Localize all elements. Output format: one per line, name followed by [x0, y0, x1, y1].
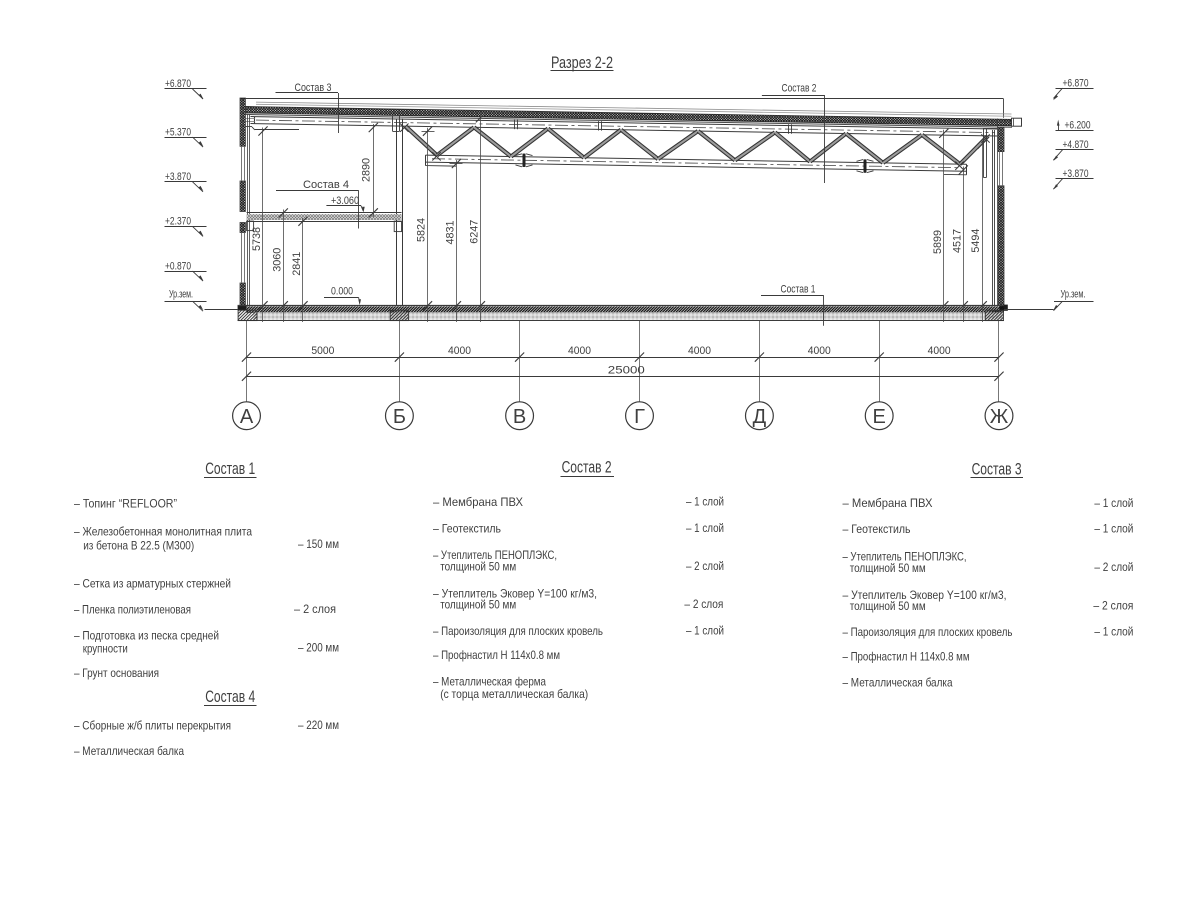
svg-text:– Мембрана ПВХ: – Мембрана ПВХ: [433, 495, 523, 509]
svg-text:2890: 2890: [360, 158, 372, 182]
svg-text:– Пароизоляция для плоских кр: – Пароизоляция для плоских кровель: [433, 624, 603, 638]
svg-text:4000: 4000: [688, 345, 711, 357]
svg-text:толщиной 50 мм: толщиной 50 мм: [440, 560, 516, 574]
svg-text:2841: 2841: [291, 252, 303, 276]
svg-text:– 1 слой: – 1 слой: [686, 521, 724, 535]
svg-text:В: В: [513, 406, 526, 428]
svg-text:+0.870: +0.870: [165, 260, 191, 272]
svg-text:– 1 слой: – 1 слой: [1094, 625, 1133, 639]
svg-text:Состав 1: Состав 1: [781, 283, 816, 295]
svg-text:4000: 4000: [568, 345, 591, 357]
svg-text:толщиной 50 мм: толщиной 50 мм: [440, 597, 516, 611]
svg-text:Состав 2: Состав 2: [782, 83, 817, 95]
svg-text:– Профнастил Н 114х0.8 мм: – Профнастил Н 114х0.8 мм: [433, 648, 560, 662]
svg-text:– Геотекстиль: – Геотекстиль: [843, 522, 911, 536]
svg-text:+2.370: +2.370: [165, 216, 191, 228]
svg-text:толщиной 50 мм: толщиной 50 мм: [850, 561, 926, 575]
svg-text:Ур.зем.: Ур.зем.: [1061, 289, 1086, 301]
svg-text:Ур.зем.: Ур.зем.: [169, 289, 193, 301]
svg-text:4000: 4000: [448, 345, 471, 357]
svg-text:4517: 4517: [951, 229, 963, 253]
svg-text:– 2 слой: – 2 слой: [1094, 560, 1133, 574]
svg-text:(с торца металлическая балка): (с торца металлическая балка): [440, 687, 588, 701]
svg-text:– Профнастил Н 114х0.8 мм: – Профнастил Н 114х0.8 мм: [843, 649, 970, 663]
svg-text:Е: Е: [873, 406, 886, 428]
svg-text:– Металлическая балка: – Металлическая балка: [843, 675, 953, 689]
svg-text:6247: 6247: [468, 220, 480, 244]
svg-text:Ж: Ж: [990, 406, 1009, 428]
svg-text:Разрез 2-2: Разрез 2-2: [551, 53, 613, 72]
svg-text:– Сборные ж/б плиты перекрыти: – Сборные ж/б плиты перекрытия: [74, 719, 231, 733]
svg-text:– Пленка полиэтиленовая: – Пленка полиэтиленовая: [74, 603, 191, 617]
svg-text:крупности: крупности: [83, 641, 128, 655]
svg-text:– Мембрана ПВХ: – Мембрана ПВХ: [843, 496, 933, 510]
svg-text:– 1 слой: – 1 слой: [686, 495, 724, 509]
svg-text:5494: 5494: [970, 229, 982, 253]
svg-text:25000: 25000: [608, 365, 645, 377]
svg-text:Состав 2: Состав 2: [562, 459, 612, 477]
svg-text:– Металлическая балка: – Металлическая балка: [74, 744, 184, 758]
svg-text:+5.370: +5.370: [165, 126, 191, 138]
svg-text:Состав 1: Состав 1: [205, 460, 255, 478]
svg-text:– Грунт основания: – Грунт основания: [74, 666, 159, 680]
svg-text:Состав 4: Состав 4: [303, 179, 349, 191]
svg-text:– Железобетонная монолитная: – Железобетонная монолитная плита: [74, 525, 252, 539]
svg-text:0.000: 0.000: [331, 286, 353, 298]
svg-text:Д: Д: [753, 406, 767, 428]
svg-text:5824: 5824: [416, 218, 428, 242]
svg-text:– 2 слоя: – 2 слоя: [1093, 598, 1133, 612]
svg-text:– Геотекстиль: – Геотекстиль: [433, 522, 501, 536]
svg-text:5000: 5000: [311, 345, 334, 357]
svg-text:Б: Б: [393, 406, 406, 428]
svg-text:– 220 мм: – 220 мм: [298, 718, 339, 732]
svg-text:3060: 3060: [271, 248, 283, 272]
svg-text:Состав 3: Состав 3: [972, 460, 1022, 478]
svg-text:из бетона В 22.5 (М300): из бетона В 22.5 (М300): [83, 539, 194, 553]
svg-text:– Сетка из арматурных стержне: – Сетка из арматурных стержней: [74, 577, 231, 591]
svg-text:4000: 4000: [808, 345, 831, 357]
svg-text:– 2 слой: – 2 слой: [686, 559, 724, 573]
svg-text:Состав 4: Состав 4: [205, 688, 255, 706]
svg-text:+6.870: +6.870: [1063, 77, 1089, 89]
svg-text:4831: 4831: [444, 221, 456, 245]
svg-text:толщиной 50 мм: толщиной 50 мм: [850, 599, 926, 613]
svg-text:– 1 слой: – 1 слой: [1094, 522, 1133, 536]
svg-text:– 150 мм: – 150 мм: [298, 537, 339, 551]
svg-text:А: А: [240, 406, 254, 428]
svg-text:Г: Г: [634, 406, 645, 428]
svg-text:– 2 слоя: – 2 слоя: [684, 597, 723, 611]
svg-text:– 1 слой: – 1 слой: [1094, 496, 1133, 510]
svg-text:5899: 5899: [932, 230, 944, 254]
svg-text:– Топинг “REFLOOR”: – Топинг “REFLOOR”: [74, 497, 177, 511]
svg-text:5738: 5738: [251, 227, 263, 251]
svg-text:– 1 слой: – 1 слой: [686, 623, 724, 637]
svg-text:– 200 мм: – 200 мм: [298, 641, 339, 655]
svg-text:– 2 слоя: – 2 слоя: [294, 602, 336, 616]
svg-text:+6.200: +6.200: [1065, 119, 1091, 131]
svg-text:– Пароизоляция для плоских кр: – Пароизоляция для плоских кровель: [843, 625, 1013, 639]
svg-text:4000: 4000: [928, 345, 951, 357]
